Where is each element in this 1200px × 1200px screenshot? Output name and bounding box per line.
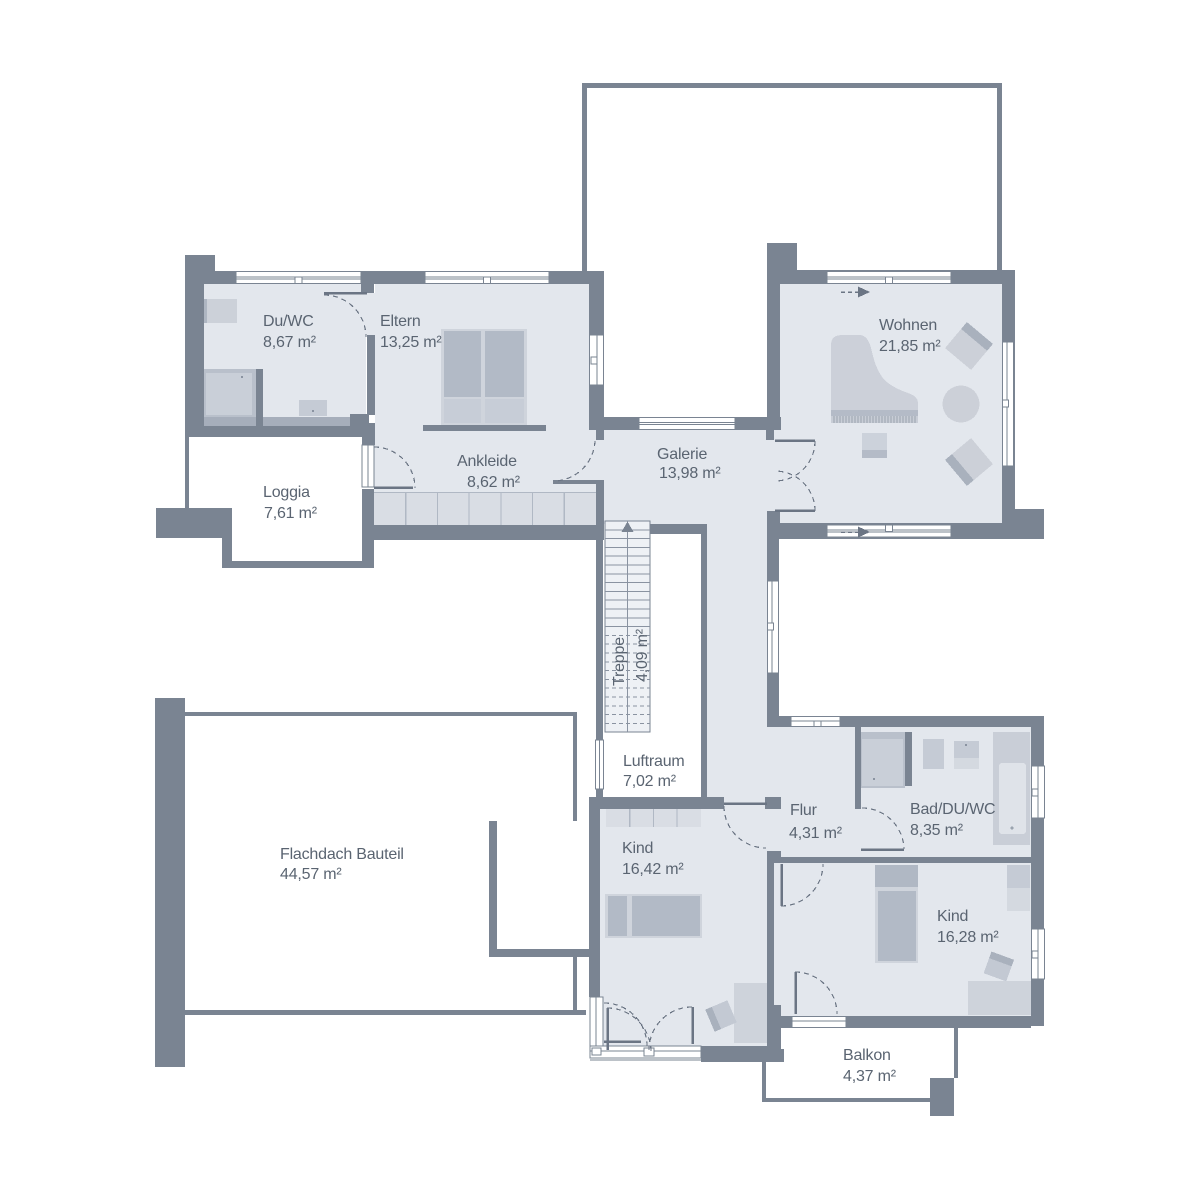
svg-text:Flachdach Bauteil: Flachdach Bauteil (280, 846, 404, 863)
svg-text:13,98 m²: 13,98 m² (659, 465, 721, 482)
svg-text:4,31 m²: 4,31 m² (789, 825, 843, 842)
svg-text:13,25 m²: 13,25 m² (380, 334, 442, 351)
svg-text:8,62 m²: 8,62 m² (467, 474, 521, 491)
svg-text:8,67 m²: 8,67 m² (263, 334, 317, 351)
svg-text:Treppe: Treppe (611, 637, 628, 686)
svg-text:4,37 m²: 4,37 m² (843, 1068, 897, 1085)
svg-text:Bad/DU/WC: Bad/DU/WC (910, 801, 995, 818)
svg-text:Kind: Kind (937, 908, 968, 925)
svg-text:7,61 m²: 7,61 m² (264, 505, 318, 522)
svg-text:Loggia: Loggia (263, 484, 310, 501)
svg-text:Wohnen: Wohnen (879, 317, 937, 334)
svg-text:16,28 m²: 16,28 m² (937, 929, 999, 946)
svg-text:Luftraum: Luftraum (623, 753, 685, 770)
svg-text:16,42 m²: 16,42 m² (622, 861, 684, 878)
svg-text:21,85 m²: 21,85 m² (879, 338, 941, 355)
svg-text:Ankleide: Ankleide (457, 453, 517, 470)
svg-text:Galerie: Galerie (657, 446, 707, 463)
svg-text:Eltern: Eltern (380, 313, 421, 330)
svg-text:Flur: Flur (790, 802, 818, 819)
svg-text:44,57 m²: 44,57 m² (280, 866, 342, 883)
svg-text:Balkon: Balkon (843, 1047, 891, 1064)
svg-text:4,09 m²: 4,09 m² (634, 628, 651, 682)
svg-text:Kind: Kind (622, 840, 653, 857)
svg-text:8,35 m²: 8,35 m² (910, 822, 964, 839)
svg-text:Du/WC: Du/WC (263, 313, 314, 330)
svg-text:7,02 m²: 7,02 m² (623, 773, 677, 790)
